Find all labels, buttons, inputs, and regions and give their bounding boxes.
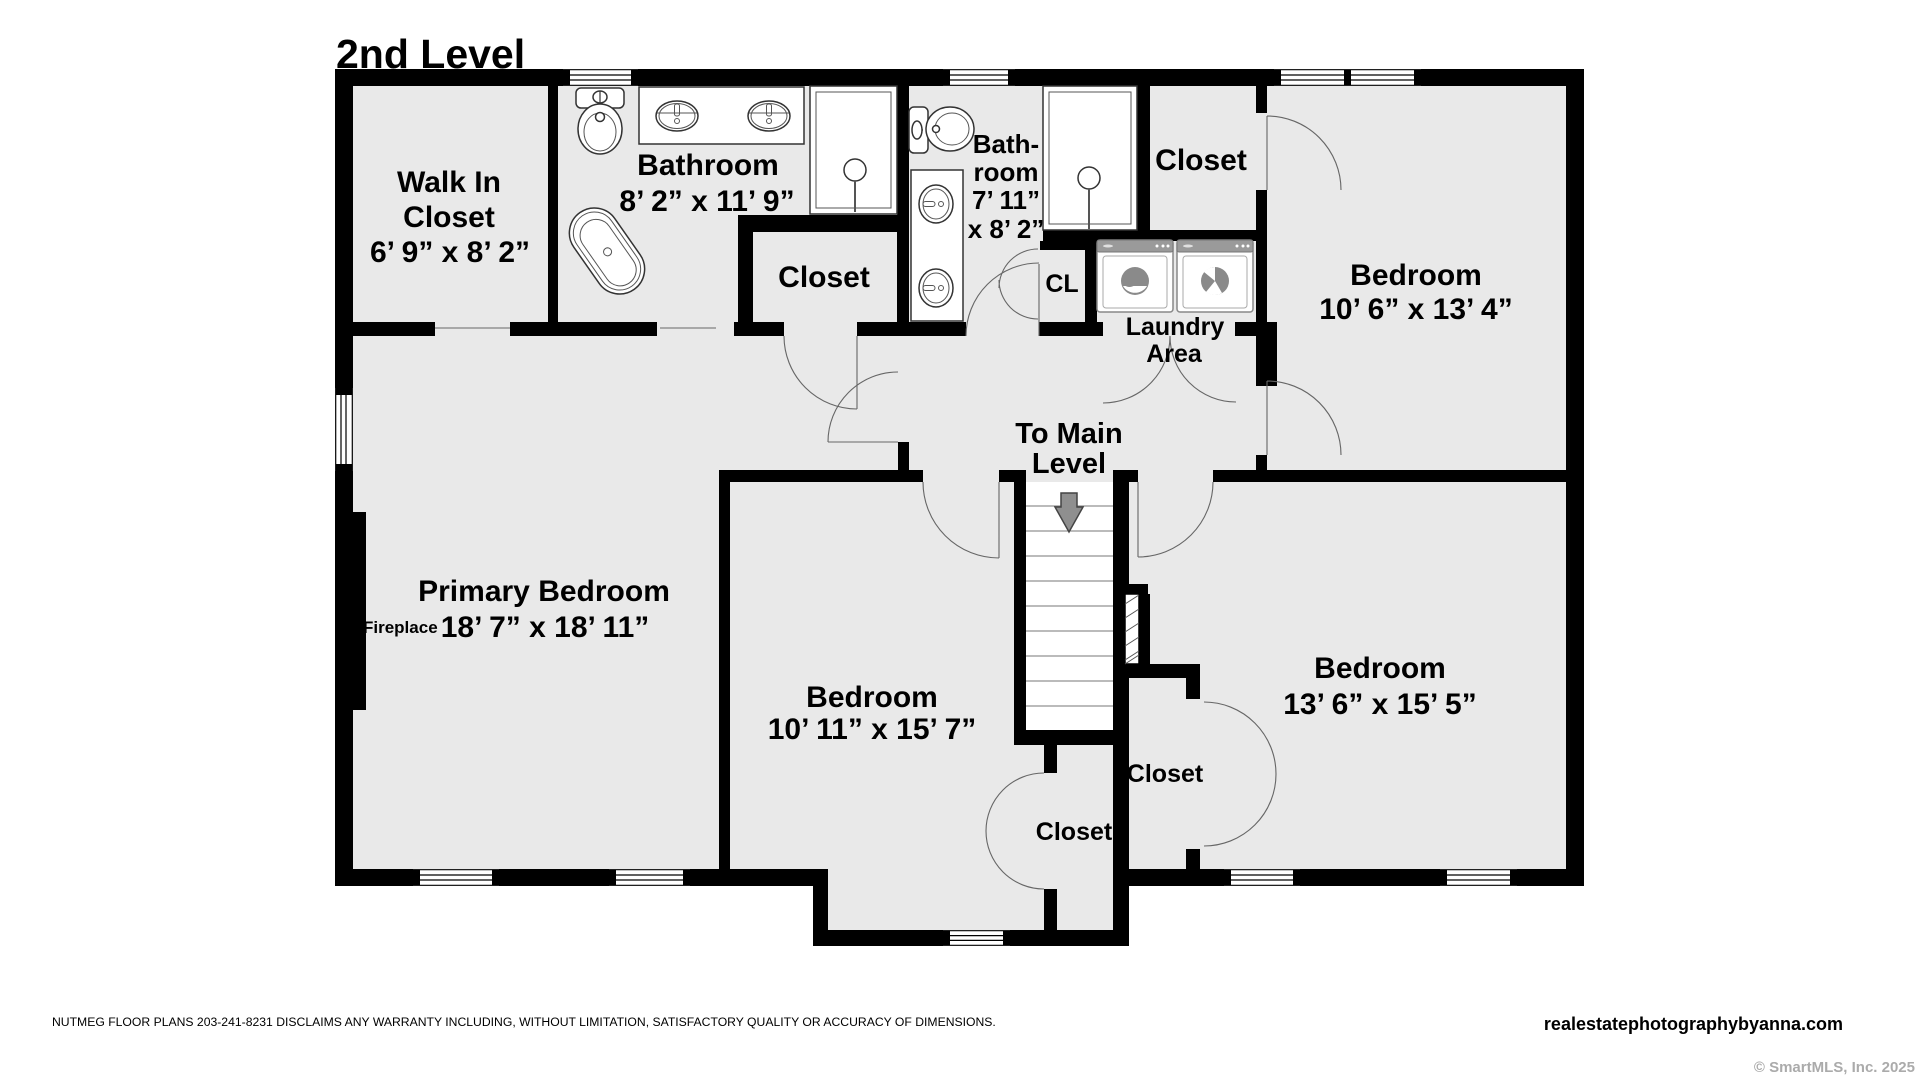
- svg-text:7’ 11”: 7’ 11”: [972, 185, 1040, 215]
- svg-text:Laundry: Laundry: [1126, 313, 1225, 341]
- svg-text:10’ 11” x 15’ 7”: 10’ 11” x 15’ 7”: [768, 713, 977, 746]
- svg-text:10’ 6” x 13’ 4”: 10’ 6” x 13’ 4”: [1319, 293, 1513, 326]
- svg-text:Closet: Closet: [1155, 144, 1247, 177]
- svg-text:Closet: Closet: [1127, 760, 1204, 788]
- svg-text:room: room: [974, 157, 1039, 187]
- svg-text:Level: Level: [1032, 448, 1106, 480]
- svg-text:x 8’ 2”: x 8’ 2”: [968, 214, 1045, 244]
- svg-text:Closet: Closet: [778, 261, 870, 294]
- svg-text:Primary Bedroom: Primary Bedroom: [418, 575, 670, 608]
- svg-text:Bath-: Bath-: [973, 129, 1039, 159]
- svg-text:Bedroom: Bedroom: [1314, 652, 1446, 685]
- svg-text:Bedroom: Bedroom: [806, 681, 938, 714]
- svg-text:8’ 2” x 11’ 9”: 8’ 2” x 11’ 9”: [619, 185, 794, 218]
- svg-text:13’ 6” x 15’ 5”: 13’ 6” x 15’ 5”: [1283, 688, 1477, 721]
- svg-text:6’ 9” x 8’ 2”: 6’ 9” x 8’ 2”: [370, 236, 530, 269]
- svg-text:Closet: Closet: [403, 201, 495, 234]
- svg-text:2nd Level: 2nd Level: [336, 31, 525, 77]
- svg-text:© SmartMLS, Inc. 2025: © SmartMLS, Inc. 2025: [1754, 1059, 1915, 1076]
- svg-text:18’ 7” x 18’ 11”: 18’ 7” x 18’ 11”: [441, 611, 650, 644]
- svg-text:Bedroom: Bedroom: [1350, 259, 1482, 292]
- svg-text:NUTMEG FLOOR PLANS 203-241-823: NUTMEG FLOOR PLANS 203-241-8231 DISCLAIM…: [52, 1015, 996, 1029]
- svg-text:Area: Area: [1146, 340, 1203, 368]
- svg-text:Closet: Closet: [1036, 818, 1113, 846]
- svg-text:realestatephotographybyanna.co: realestatephotographybyanna.com: [1544, 1014, 1843, 1034]
- svg-text:To Main: To Main: [1015, 418, 1122, 450]
- svg-text:Fireplace: Fireplace: [363, 618, 438, 637]
- svg-text:CL: CL: [1045, 270, 1078, 298]
- svg-text:Bathroom: Bathroom: [637, 149, 779, 182]
- svg-text:Walk In: Walk In: [397, 166, 501, 199]
